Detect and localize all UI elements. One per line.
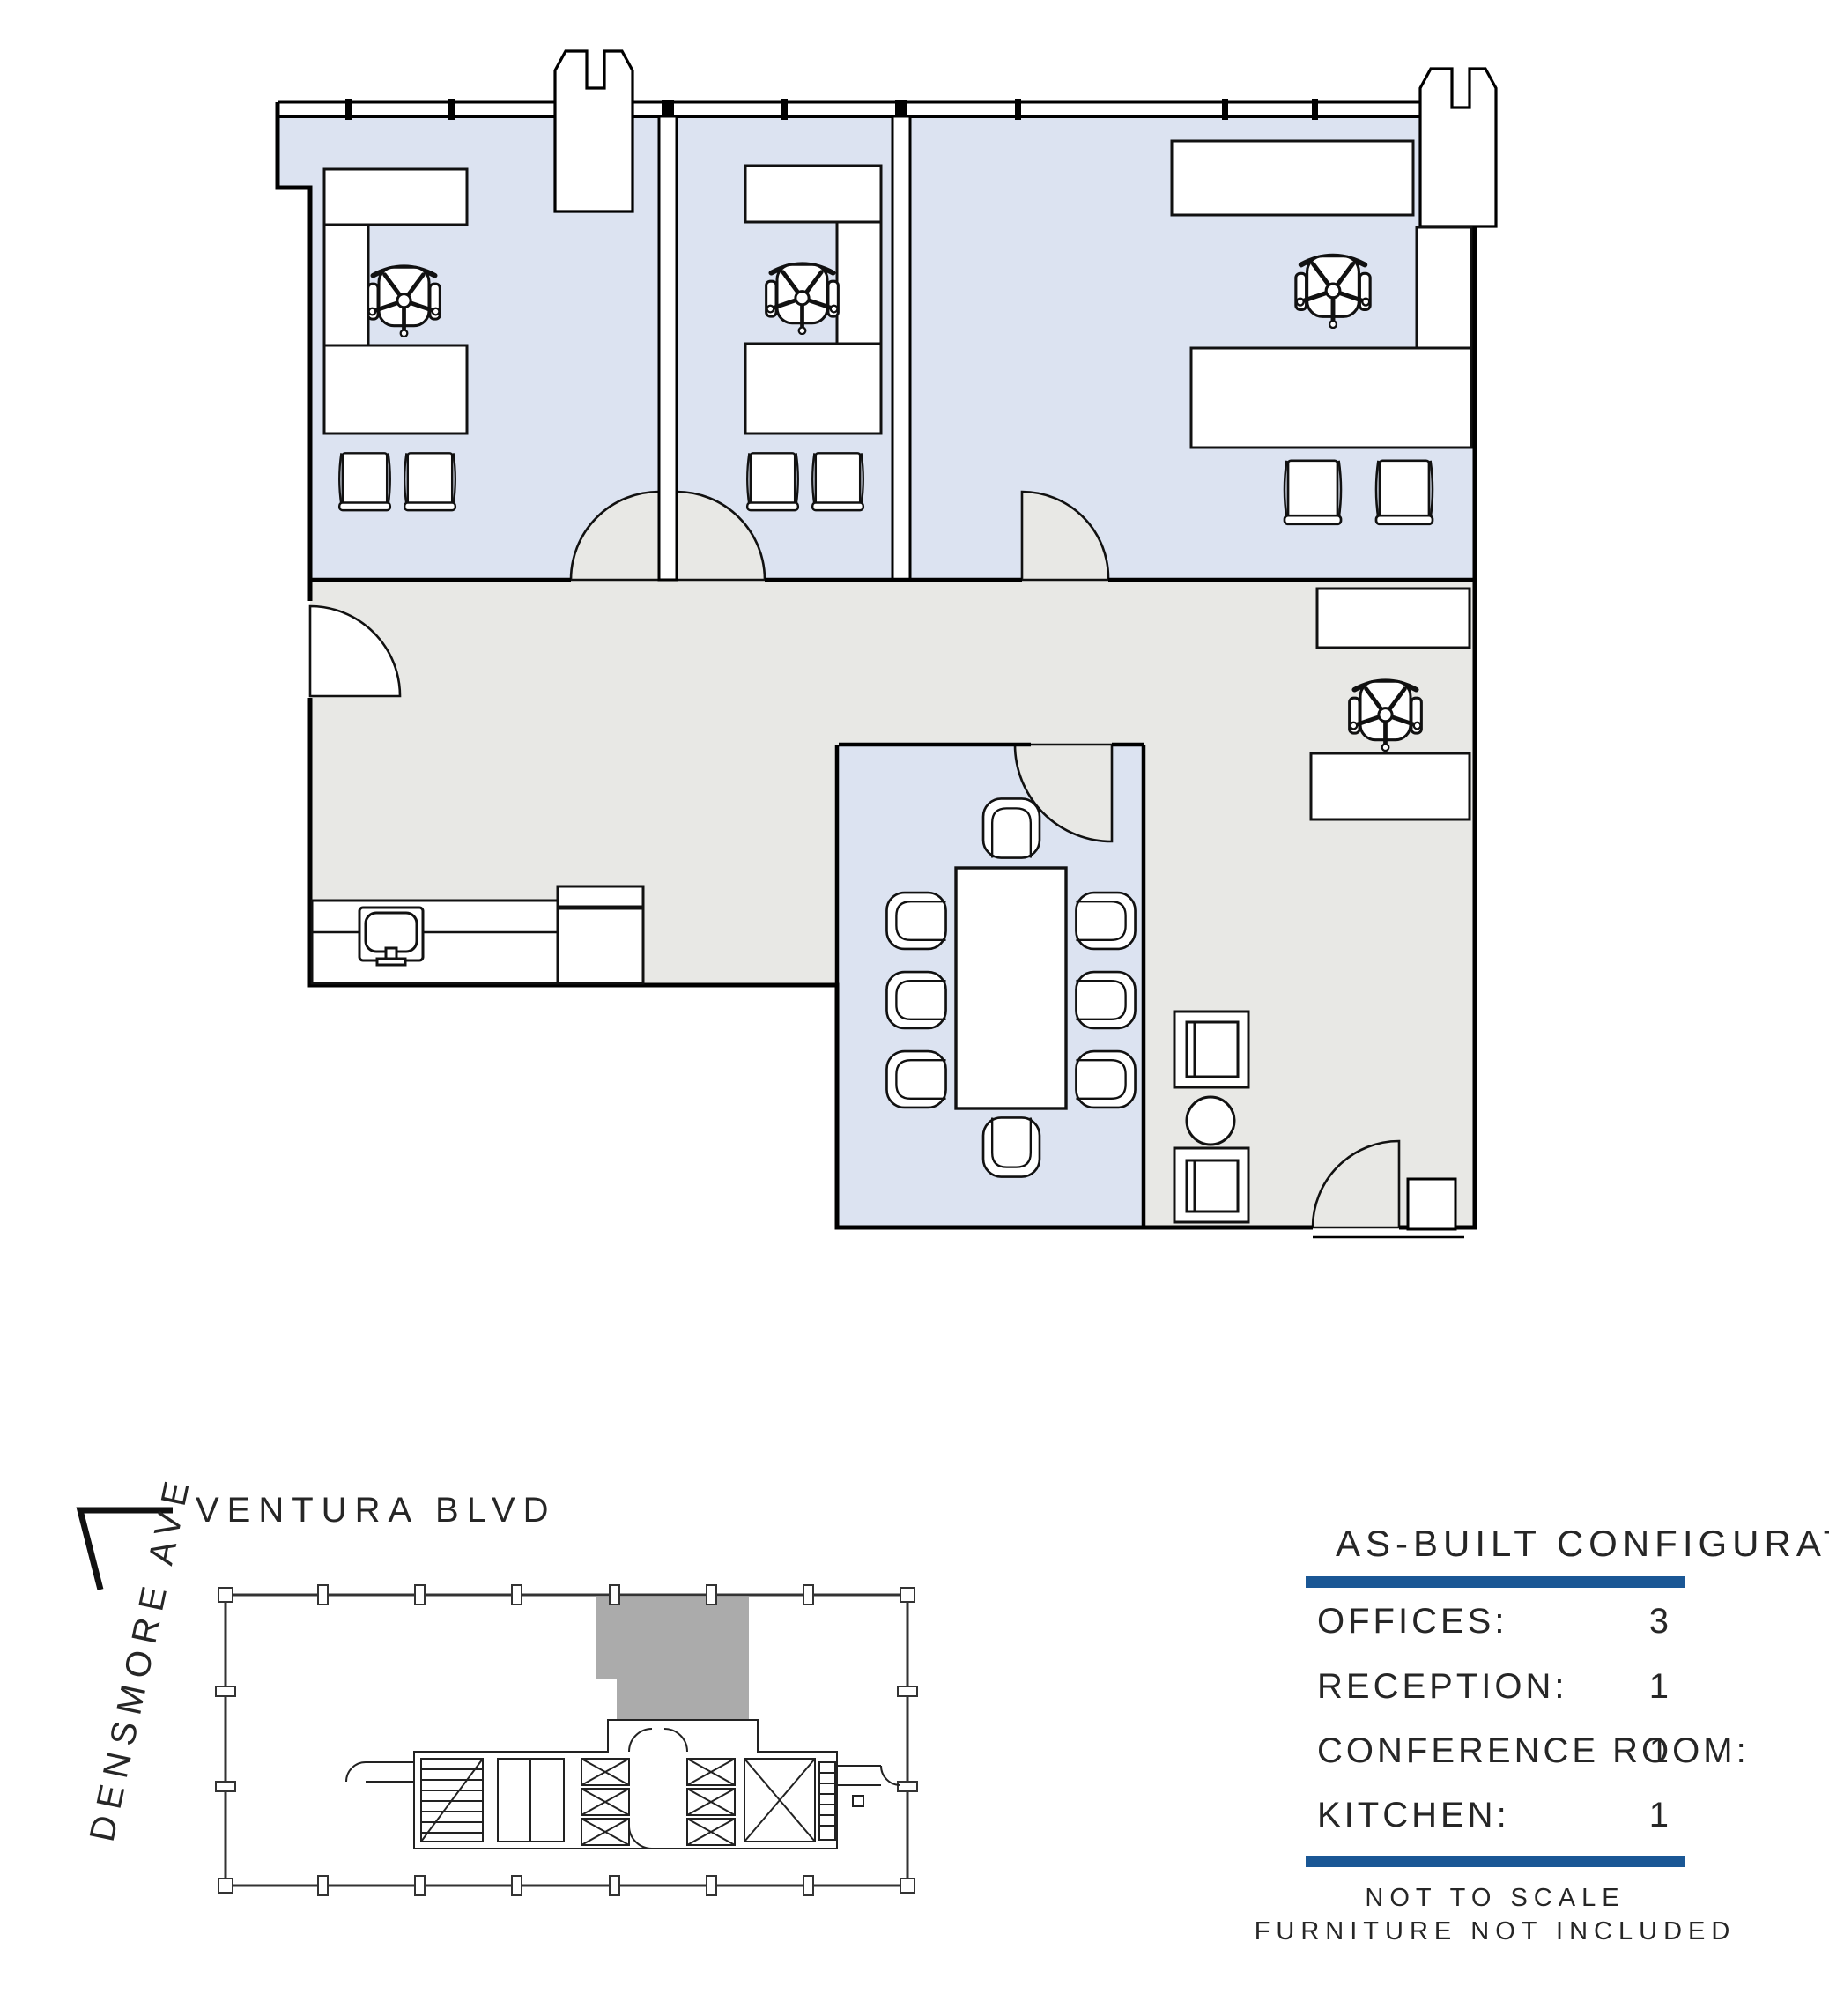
stair-icon <box>421 1759 483 1842</box>
round-table-icon <box>1187 1097 1234 1145</box>
office-2-desk <box>745 344 881 434</box>
legend-note: FURNITURE NOT INCLUDED <box>1255 1917 1736 1946</box>
office-1-desk-return <box>324 225 368 345</box>
legend-row: CONFERENCE ROOM: 1 <box>1317 1731 1750 1770</box>
office-3-desk <box>1191 348 1471 448</box>
column-icon <box>555 51 633 211</box>
office-1-credenza <box>324 169 467 225</box>
conference-chair-icon <box>886 893 945 949</box>
office-2-credenza <box>745 166 881 222</box>
conference-chair-icon <box>1076 1051 1135 1108</box>
reception-desk <box>1311 753 1470 819</box>
stair-icon <box>819 1762 835 1840</box>
legend-row: RECEPTION: 1 <box>1317 1667 1672 1706</box>
office-1-desk <box>324 345 467 434</box>
office-3-desk-return <box>1417 227 1471 348</box>
conference-chair-icon <box>1076 893 1135 949</box>
legend-row-value: 1 <box>1649 1731 1672 1770</box>
legend-row-label: KITCHEN: <box>1317 1796 1510 1834</box>
legend: AS-BUILT CONFIGURATION OFFICES: 3 RECEPT… <box>1255 1523 1829 1946</box>
legend-row: OFFICES: 3 <box>1317 1602 1672 1641</box>
kitchen-counter <box>312 901 558 983</box>
window-wall <box>278 99 1420 120</box>
legend-row: KITCHEN: 1 <box>1317 1796 1672 1834</box>
guest-chair-icon <box>812 453 863 510</box>
refrigerator-icon <box>558 886 643 983</box>
legend-row-value: 1 <box>1649 1667 1672 1706</box>
street-label-ventura: VENTURA BLVD <box>196 1491 557 1530</box>
kitchen <box>312 886 643 983</box>
guest-chair-icon <box>339 453 390 510</box>
site-plan <box>80 1510 917 1895</box>
office-2-desk-return <box>837 222 881 344</box>
legend-row-value: 3 <box>1649 1602 1672 1641</box>
office-3-credenza <box>1172 141 1413 215</box>
sink-icon <box>359 908 423 965</box>
legend-row-label: RECEPTION: <box>1317 1667 1567 1706</box>
column-icon <box>1420 69 1496 226</box>
legend-divider-bottom <box>1306 1856 1685 1867</box>
appliance-icon <box>1174 1012 1248 1087</box>
legend-title: AS-BUILT CONFIGURATION <box>1336 1523 1829 1564</box>
conference-chair-icon <box>886 972 945 1028</box>
legend-divider-top <box>1306 1576 1685 1588</box>
legend-row-label: CONFERENCE ROOM: <box>1317 1731 1750 1770</box>
legend-note: NOT TO SCALE <box>1365 1884 1625 1912</box>
conference-table <box>956 868 1066 1108</box>
street-label-densmore: DENSMORE AVE <box>83 1471 198 1845</box>
drawing-sheet: VENTURA BLVD DENSMORE AVE AS-BUILT CONFI… <box>0 0 1829 2016</box>
floor-plan <box>278 51 1496 1237</box>
guest-chair-icon <box>1285 461 1341 524</box>
column-icon <box>1408 1179 1455 1229</box>
guest-chair-icon <box>747 453 798 510</box>
guest-chair-icon <box>404 453 455 510</box>
conference-chair-icon <box>1076 972 1135 1028</box>
guest-chair-icon <box>1376 461 1433 524</box>
shaft-icon <box>744 1759 815 1842</box>
conference-chair-icon <box>983 1117 1040 1176</box>
site-suite-highlight <box>596 1597 749 1723</box>
legend-row-label: OFFICES: <box>1317 1602 1507 1641</box>
legend-row-value: 1 <box>1649 1796 1672 1834</box>
conference-chair-icon <box>983 798 1040 857</box>
appliance-icon <box>1174 1148 1248 1222</box>
page: VENTURA BLVD DENSMORE AVE AS-BUILT CONFI… <box>0 0 1829 2016</box>
conference-chair-icon <box>886 1051 945 1108</box>
reception-credenza <box>1317 589 1470 648</box>
